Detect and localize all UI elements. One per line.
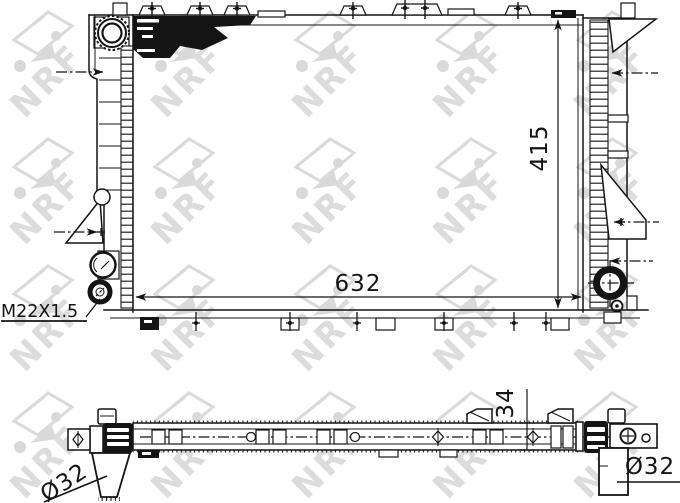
left-tank-serration	[121, 46, 133, 308]
dim-core-depth-label: 34	[493, 387, 519, 418]
outlet-diameter-label: Ø32	[625, 454, 675, 480]
dim-core-height-label: 415	[527, 125, 553, 172]
outlet-diameter-callout: Ø32	[617, 454, 680, 482]
right-tank-serration	[590, 20, 608, 308]
drain-plug-thread-label: M22X1.5	[1, 302, 78, 322]
inlet-fitting	[91, 251, 120, 279]
dim-core-width-label: 632	[335, 271, 382, 297]
outlet-pipe	[599, 448, 628, 495]
right-tank-top-tab	[621, 3, 635, 18]
top-clamp	[551, 10, 576, 18]
radiator-technical-drawing: NRF	[0, 0, 680, 503]
technical-drawing-page: NRF	[0, 0, 680, 503]
